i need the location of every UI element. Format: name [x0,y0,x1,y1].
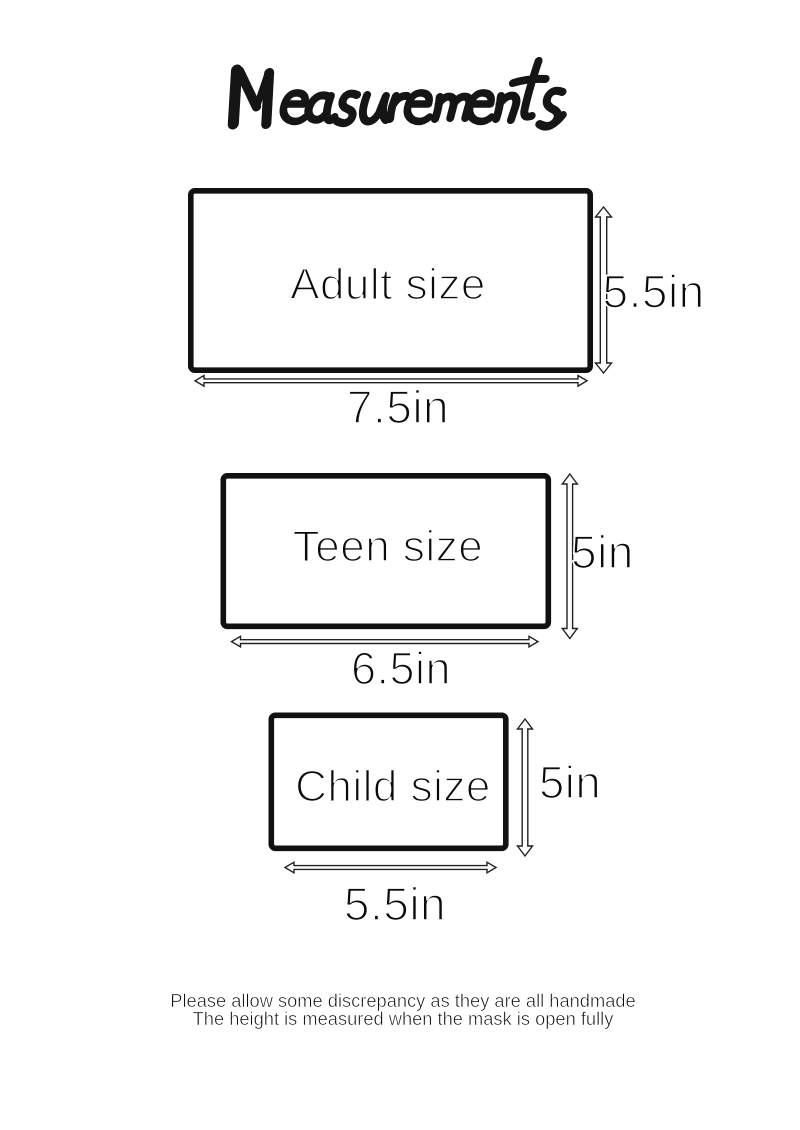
svg-text:Child size: Child size [295,762,491,811]
svg-text:Teen size: Teen size [293,522,483,571]
svg-text:Adult size: Adult size [290,260,486,309]
svg-text:7.5in: 7.5in [347,381,449,433]
svg-text:5.5in: 5.5in [603,266,705,318]
svg-text:5in: 5in [571,526,634,578]
svg-text:6.5in: 6.5in [351,643,451,694]
svg-text:5in: 5in [539,757,601,808]
svg-text:5.5in: 5.5in [344,878,446,930]
svg-text:The height is measured when th: The height is measured when the mask is … [193,1008,615,1029]
